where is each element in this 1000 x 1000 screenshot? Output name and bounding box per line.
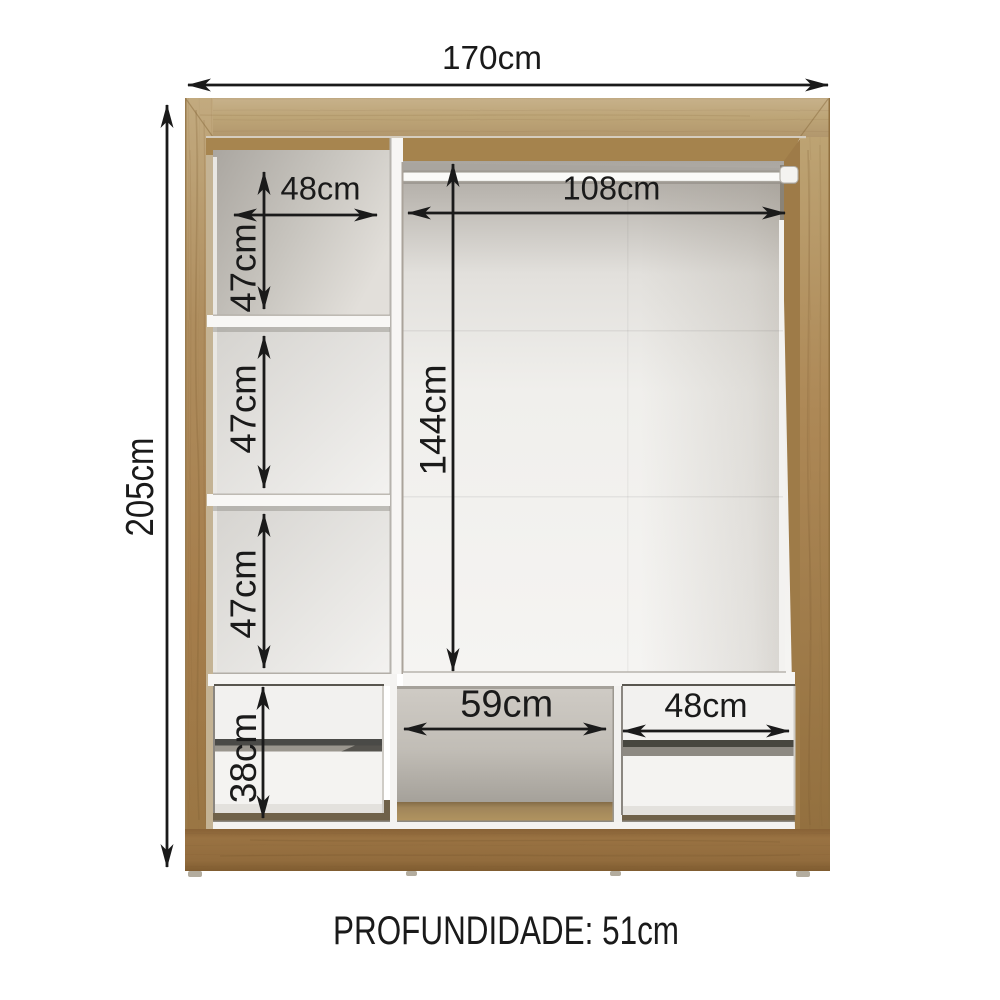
svg-text:47cm: 47cm bbox=[223, 549, 264, 638]
svg-text:144cm: 144cm bbox=[413, 364, 454, 475]
svg-text:59cm: 59cm bbox=[460, 684, 553, 726]
svg-text:48cm: 48cm bbox=[281, 171, 361, 207]
svg-text:38cm: 38cm bbox=[223, 713, 264, 803]
svg-text:47cm: 47cm bbox=[223, 364, 264, 453]
svg-text:205cm: 205cm bbox=[119, 438, 162, 537]
svg-text:170cm: 170cm bbox=[442, 39, 542, 76]
svg-text:47cm: 47cm bbox=[223, 223, 264, 312]
svg-text:108cm: 108cm bbox=[563, 171, 661, 208]
svg-text:PROFUNDIDADE: 51cm: PROFUNDIDADE: 51cm bbox=[333, 909, 679, 953]
svg-text:48cm: 48cm bbox=[664, 687, 747, 725]
